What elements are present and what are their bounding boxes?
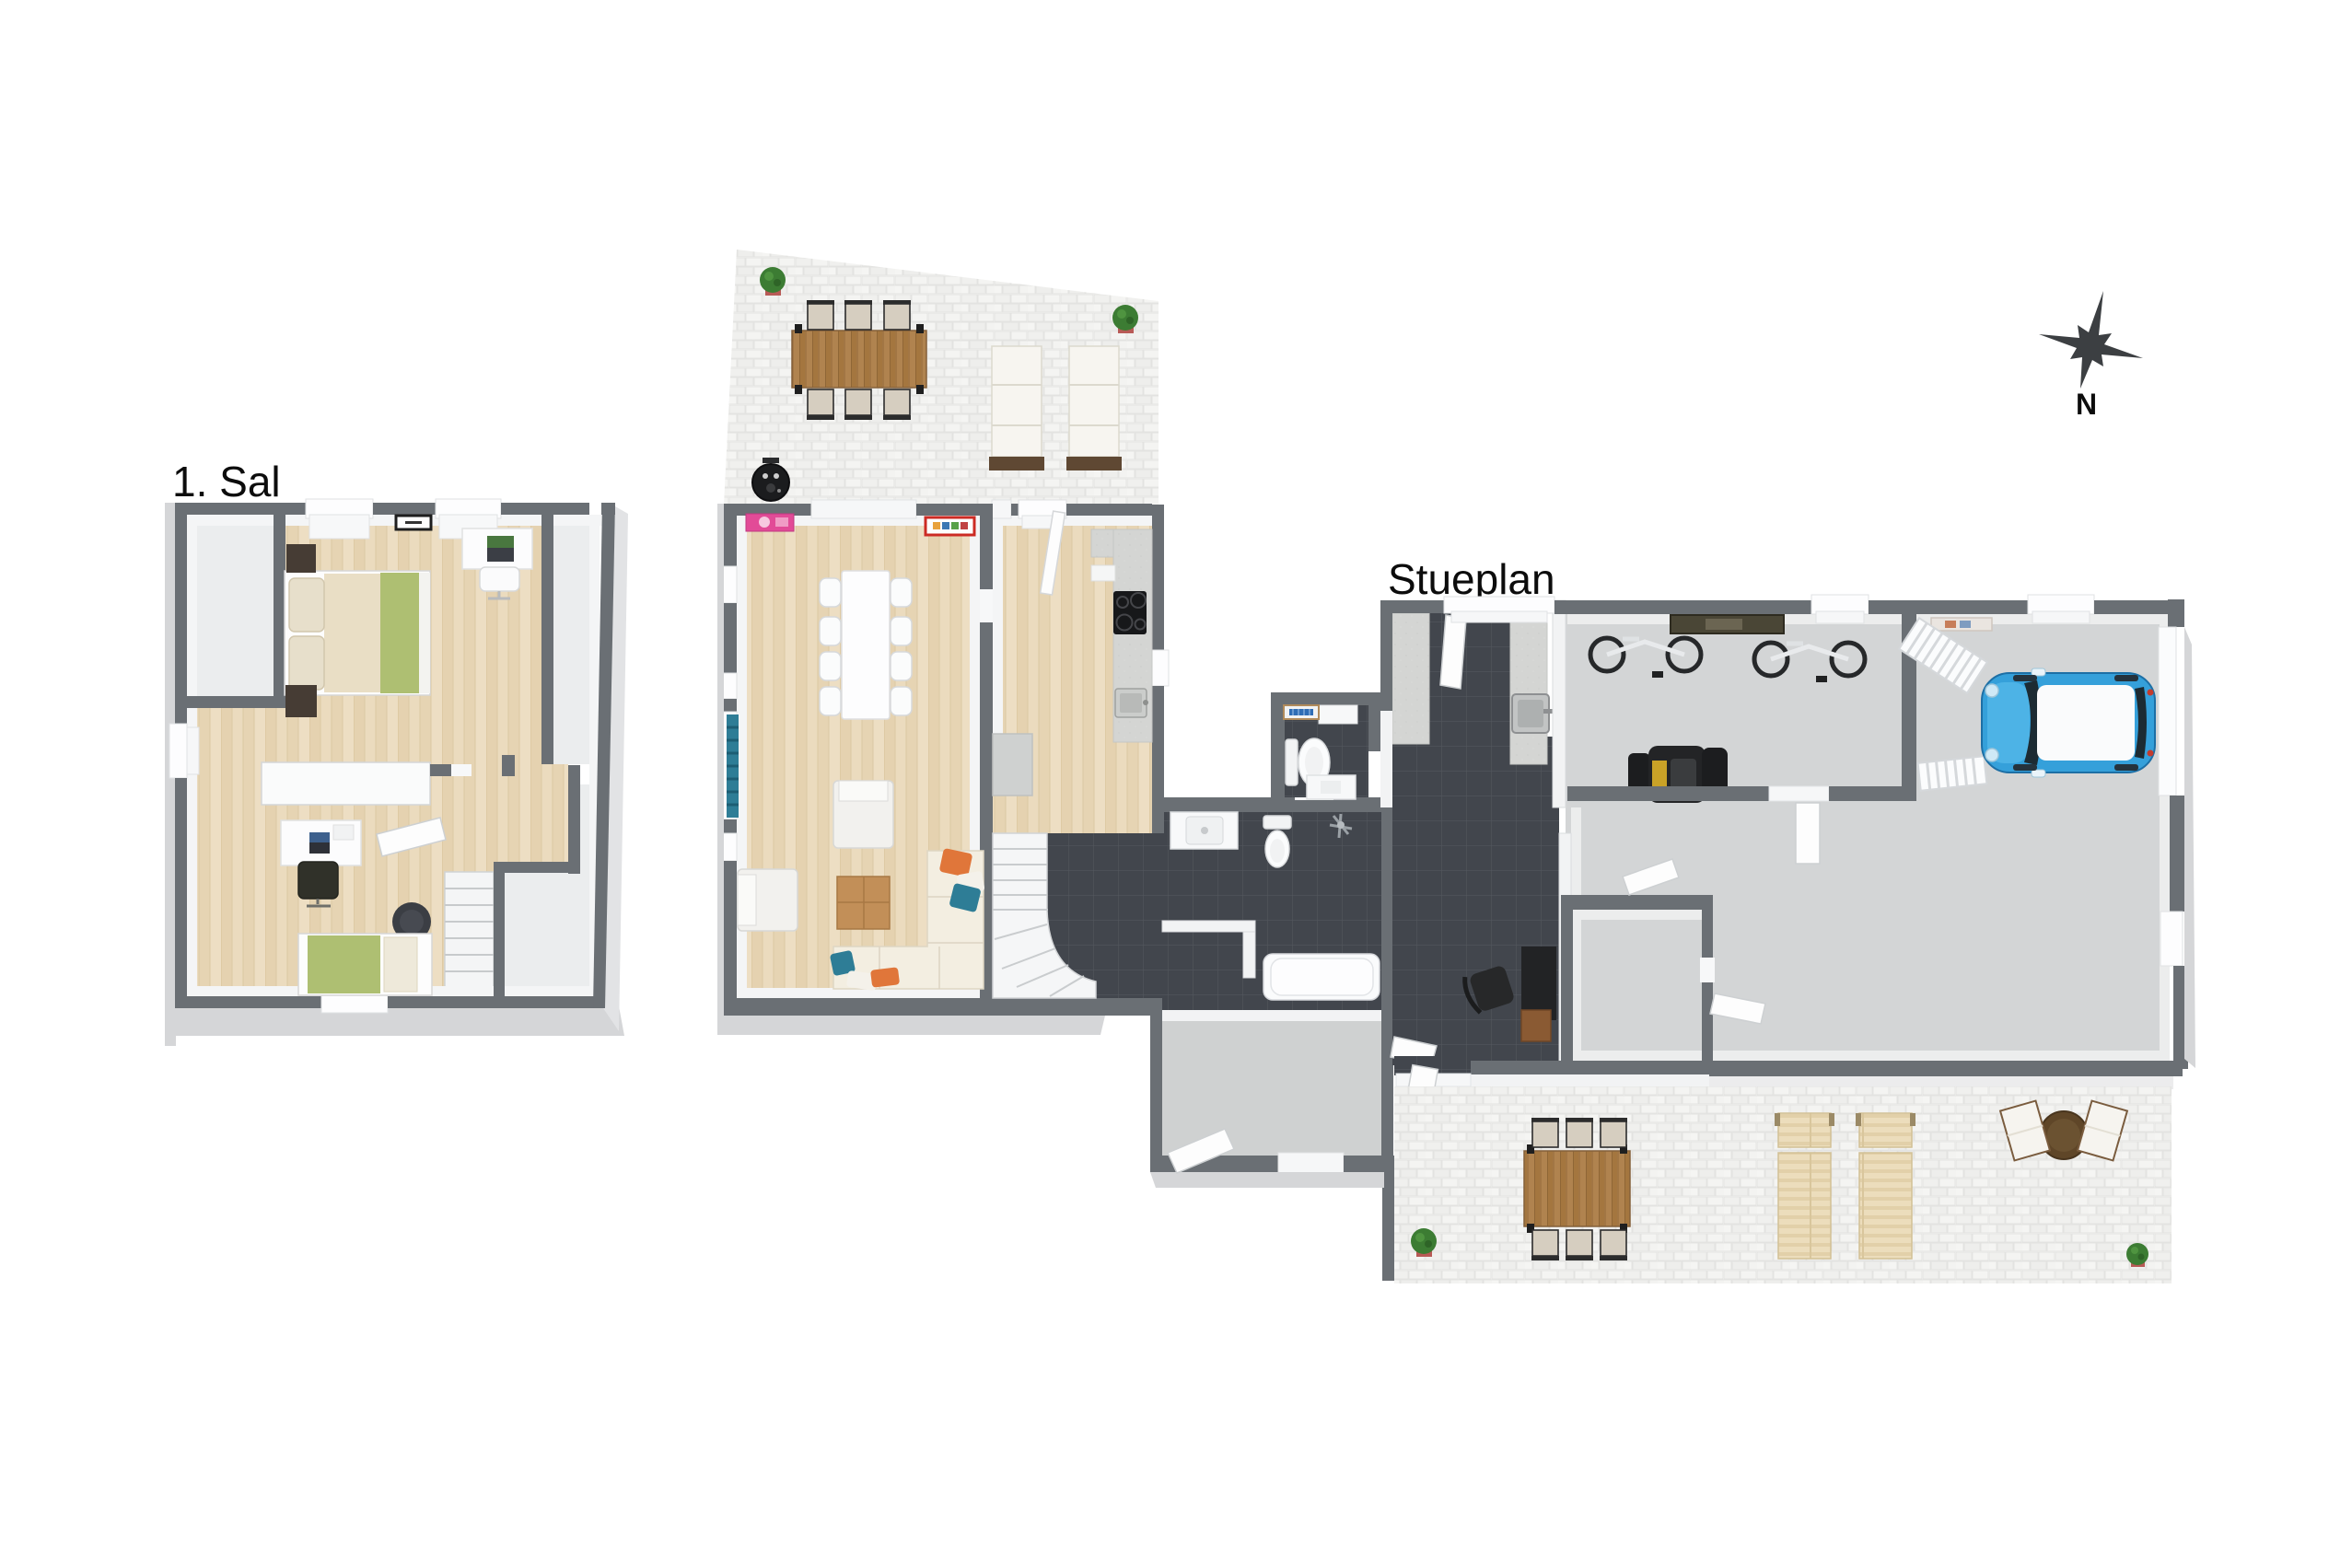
svg-text:N: N [2076, 388, 2097, 421]
svg-text:1. Sal: 1. Sal [172, 458, 281, 505]
svg-text:Stueplan: Stueplan [1388, 555, 1555, 603]
